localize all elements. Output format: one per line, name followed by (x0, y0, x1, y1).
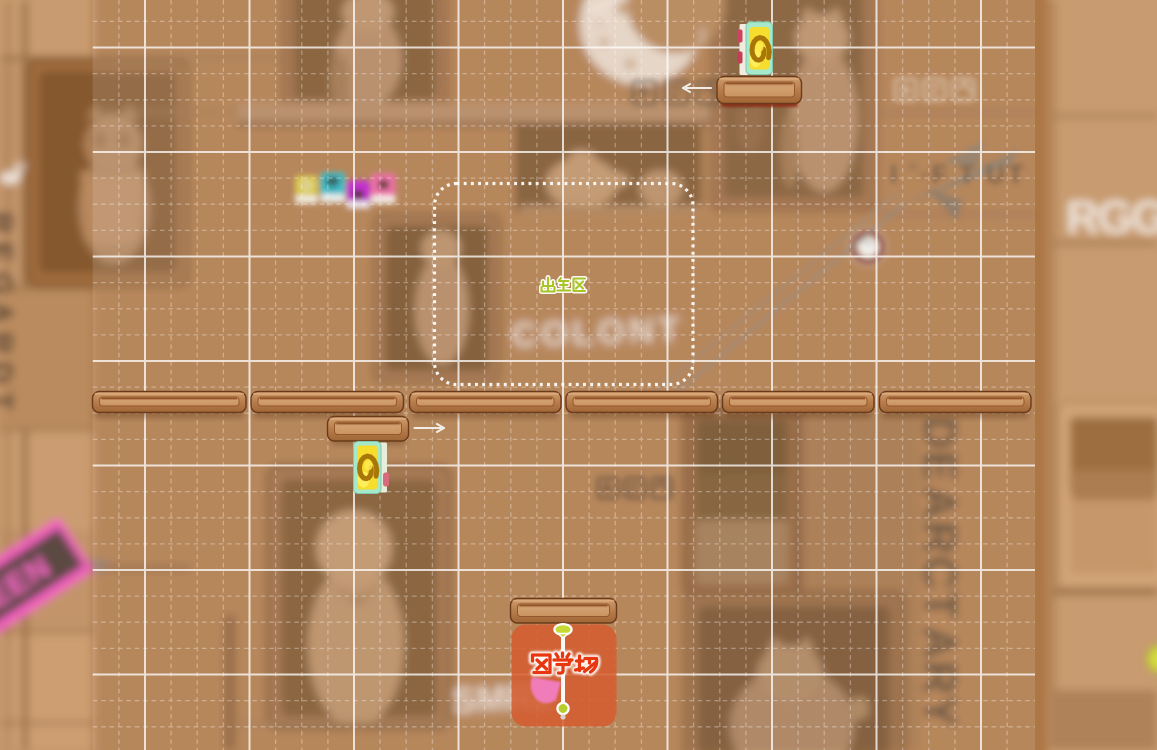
svg-text:R: R (0, 212, 18, 234)
svg-text:T: T (0, 392, 18, 410)
svg-text:D: D (0, 362, 18, 384)
svg-text:R: R (0, 332, 18, 354)
svg-text:G: G (0, 272, 18, 295)
svg-text:E: E (0, 242, 18, 262)
svg-text:A: A (0, 302, 18, 324)
svg-text:I ˉ·F T UT: I ˉ·F T UT (890, 159, 1027, 189)
svg-text:RGGC: RGGC (1066, 191, 1157, 243)
